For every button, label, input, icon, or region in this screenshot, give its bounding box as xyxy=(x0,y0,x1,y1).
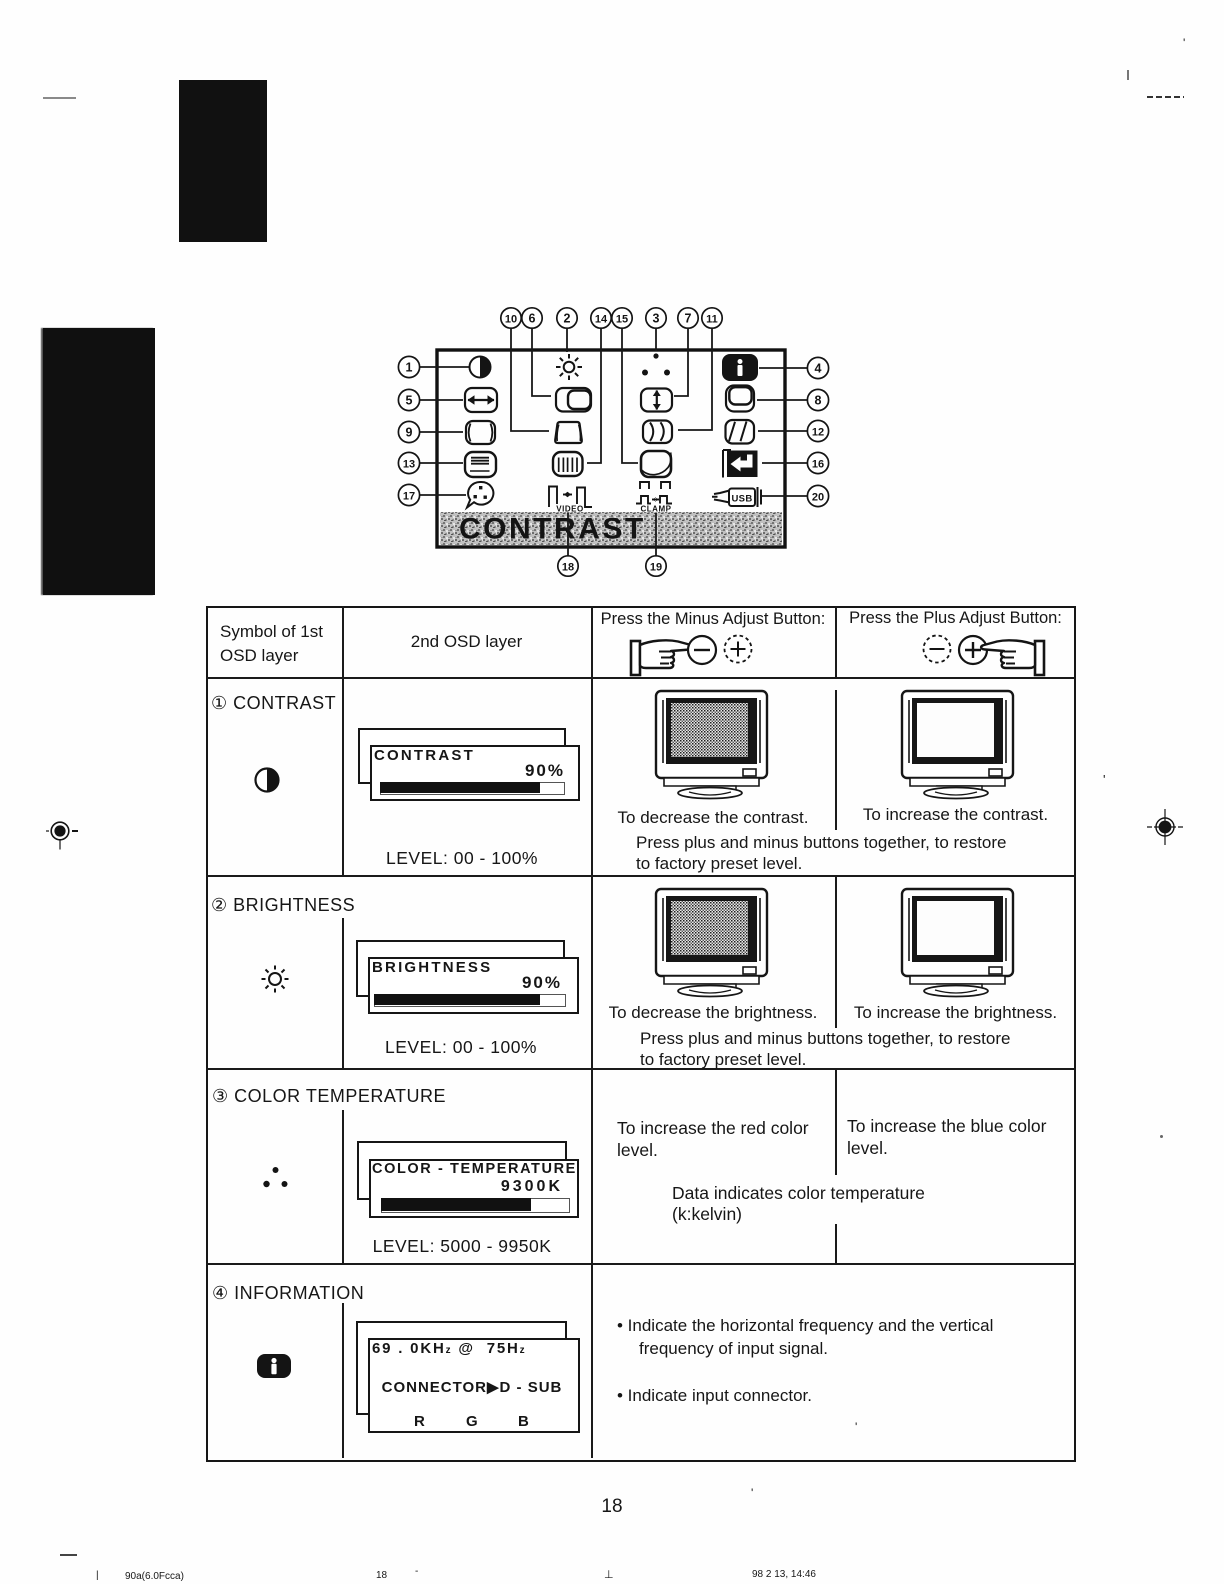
svg-text:14: 14 xyxy=(595,314,608,326)
svg-text:VIDEO: VIDEO xyxy=(556,505,583,514)
svg-text:3: 3 xyxy=(653,312,660,326)
svg-text:10: 10 xyxy=(505,314,517,326)
svg-text:12: 12 xyxy=(812,427,824,439)
svg-text:19: 19 xyxy=(650,562,662,574)
svg-text:7: 7 xyxy=(685,312,692,326)
svg-text:9: 9 xyxy=(406,426,413,440)
svg-text:2: 2 xyxy=(564,312,571,326)
svg-text:20: 20 xyxy=(812,492,824,504)
svg-text:5: 5 xyxy=(406,394,413,408)
svg-text:13: 13 xyxy=(403,459,415,471)
svg-text:1: 1 xyxy=(406,361,413,375)
svg-text:15: 15 xyxy=(616,314,628,326)
svg-text:6: 6 xyxy=(529,312,536,326)
svg-text:CONTRAST: CONTRAST xyxy=(459,513,646,546)
svg-text:8: 8 xyxy=(815,394,822,408)
svg-text:4: 4 xyxy=(815,362,822,376)
svg-text:CLAMP: CLAMP xyxy=(641,505,672,514)
svg-text:18: 18 xyxy=(562,562,574,574)
svg-text:USB: USB xyxy=(732,494,753,505)
svg-text:16: 16 xyxy=(812,459,824,471)
svg-text:17: 17 xyxy=(403,491,415,503)
svg-text:11: 11 xyxy=(706,314,718,326)
